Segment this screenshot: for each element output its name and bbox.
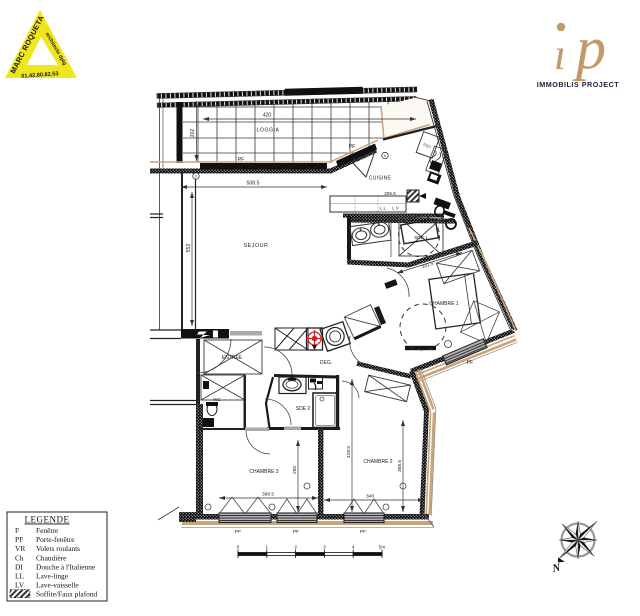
svg-text:202: 202 [190, 129, 196, 138]
svg-text:L L: L L [380, 206, 387, 211]
svg-text:VR: VR [15, 544, 25, 553]
svg-text:Chaudière: Chaudière [36, 553, 67, 562]
svg-text:Douche à l'Italienne: Douche à l'Italienne [36, 562, 96, 571]
svg-text:WC: WC [213, 397, 221, 402]
svg-text:p: p [572, 15, 606, 81]
svg-text:Ch: Ch [15, 553, 24, 562]
svg-text:358.5: 358.5 [397, 460, 403, 472]
svg-text:3: 3 [323, 545, 326, 550]
svg-text:348: 348 [366, 494, 374, 500]
svg-text:398.5: 398.5 [262, 492, 274, 498]
svg-text:CHAMBRE 3: CHAMBRE 3 [249, 469, 278, 475]
svg-text:CHAMBRE 1: CHAMBRE 1 [429, 301, 458, 307]
svg-text:DI: DI [15, 562, 23, 571]
svg-text:LEGENDE: LEGENDE [25, 515, 70, 525]
svg-text:4: 4 [352, 545, 355, 550]
svg-text:295: 295 [292, 466, 298, 474]
svg-text:SDE 2: SDE 2 [296, 406, 311, 412]
svg-text:5m: 5m [379, 545, 386, 550]
svg-text:420: 420 [263, 113, 272, 119]
svg-text:2: 2 [294, 545, 297, 550]
svg-text:552: 552 [186, 244, 192, 253]
svg-text:CHAMBRE 2: CHAMBRE 2 [363, 459, 392, 465]
svg-text:Soffite/Faux plafond: Soffite/Faux plafond [36, 590, 98, 599]
svg-text:0: 0 [237, 545, 240, 550]
svg-text:L V: L V [392, 206, 399, 211]
svg-text:1: 1 [266, 545, 269, 550]
svg-text:PF: PF [238, 157, 244, 163]
svg-text:PF: PF [360, 529, 366, 535]
svg-text:LL: LL [15, 572, 25, 581]
svg-text:206.5: 206.5 [384, 191, 396, 196]
svg-text:Porte-fenêtre: Porte-fenêtre [36, 535, 75, 544]
svg-text:508.5: 508.5 [247, 181, 260, 187]
svg-text:LV: LV [15, 581, 25, 590]
svg-text:Lave-linge: Lave-linge [36, 572, 69, 581]
svg-text:SDE 1: SDE 1 [414, 235, 428, 241]
svg-text:h: h [384, 153, 386, 158]
svg-text:Fenêtre: Fenêtre [36, 526, 59, 535]
svg-text:F: F [15, 526, 19, 535]
svg-text:LOGGIA: LOGGIA [257, 128, 280, 134]
svg-text:PF: PF [235, 529, 241, 535]
svg-text:h: h [195, 174, 197, 179]
svg-text:DEG.: DEG. [320, 360, 332, 366]
svg-text:Volets roulants: Volets roulants [36, 544, 80, 553]
svg-text:IMMOBILIS PROJECT: IMMOBILIS PROJECT [537, 80, 619, 89]
svg-text:428.5: 428.5 [346, 446, 352, 458]
svg-text:CUISINE: CUISINE [369, 176, 392, 182]
svg-text:ı: ı [554, 30, 566, 79]
svg-text:PF: PF [349, 144, 355, 150]
svg-text:PF: PF [293, 529, 299, 535]
svg-text:PF: PF [15, 535, 23, 544]
svg-text:PF: PF [467, 360, 473, 366]
svg-text:Lave-vaisselle: Lave-vaisselle [36, 581, 79, 590]
svg-text:SEJOUR: SEJOUR [244, 243, 269, 249]
svg-text:ENTREE: ENTREE [222, 355, 243, 361]
